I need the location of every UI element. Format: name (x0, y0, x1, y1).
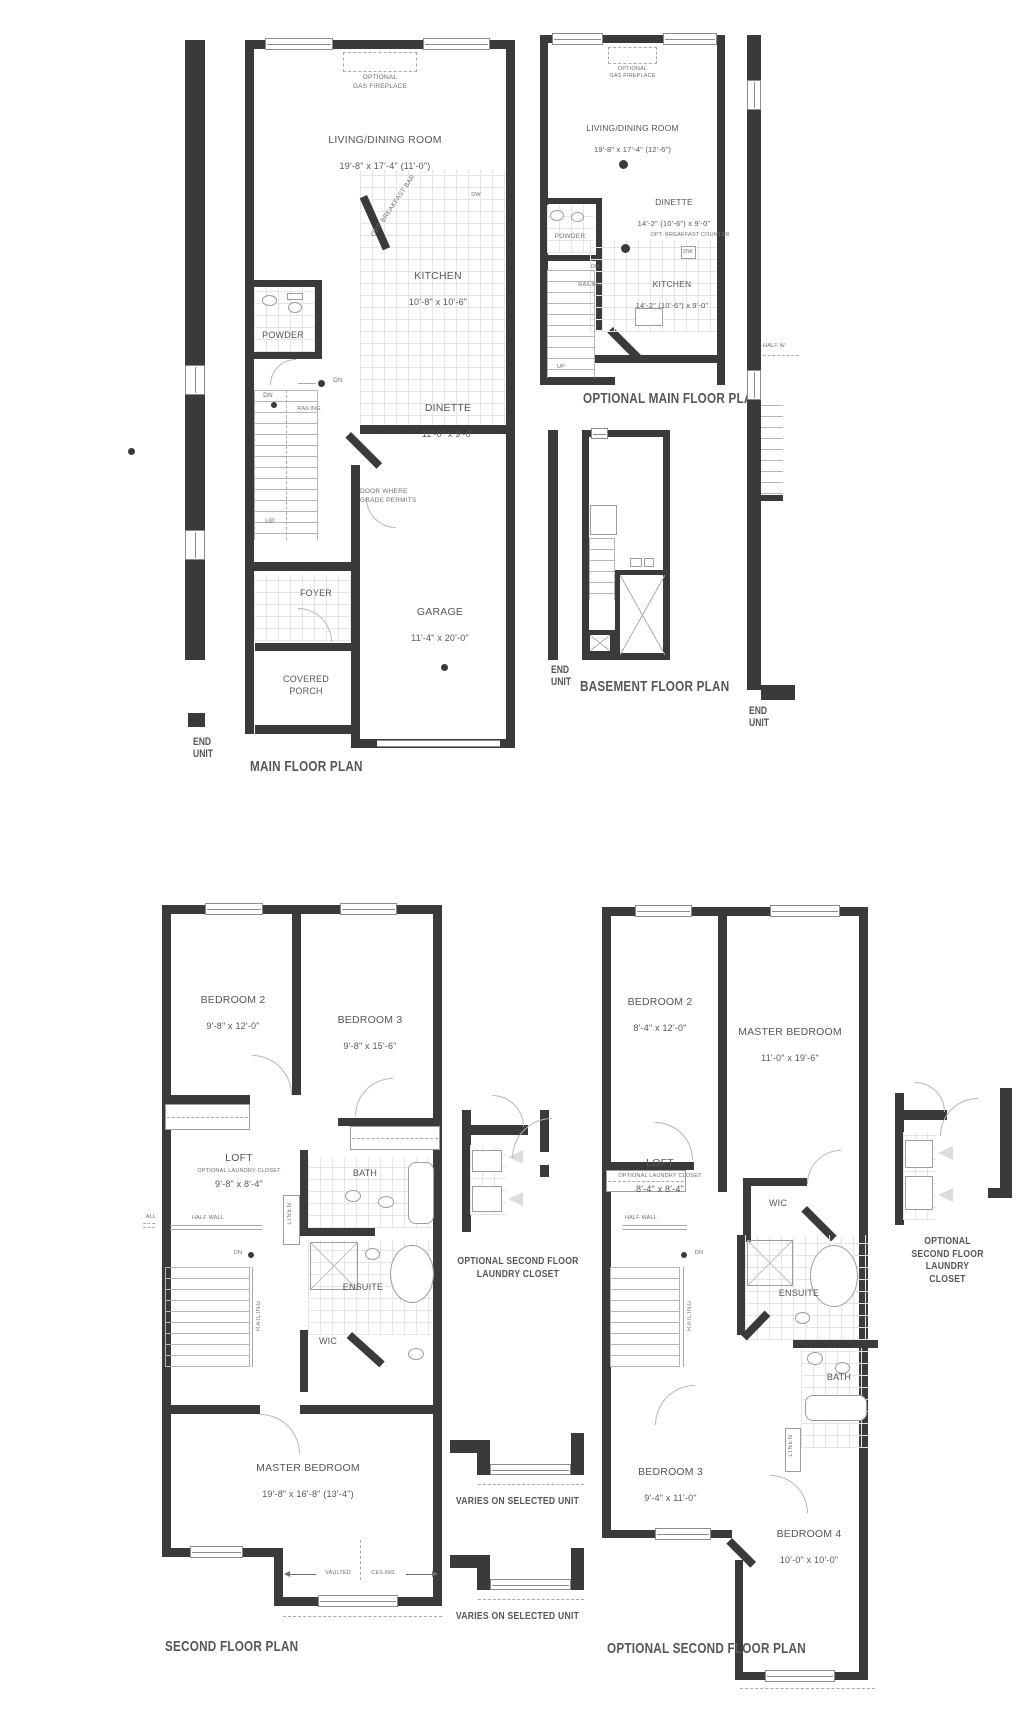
room-dims: 8'-4" x 12'-0" (595, 1023, 725, 1035)
room-dims: 11'-4" x 20'-0" (390, 633, 490, 645)
door-swing-arc (252, 1055, 292, 1095)
optional-fireplace-note: OPTIONAL GAS FIREPLACE (595, 66, 670, 81)
room-dims: 19'-8" x 17'-4" (12'-6") (580, 145, 685, 155)
window-icon (185, 365, 205, 395)
powder-wall (248, 352, 322, 359)
wic-wall (743, 1178, 807, 1186)
ceiling-label: CEILING (363, 1570, 403, 1577)
linen-label: LINEN (287, 1202, 293, 1225)
unexcavated-area (615, 570, 670, 660)
linen-label: LINEN (788, 1434, 794, 1457)
vaulted-arrow-line (406, 1574, 432, 1575)
room-name: LIVING/DINING ROOM (580, 123, 685, 134)
stairs (610, 1267, 680, 1367)
detail-wall-stub (540, 1165, 549, 1177)
room-name: LIVING/DINING ROOM (295, 134, 475, 148)
dryer-symbol (472, 1186, 502, 1212)
leader-line (143, 1227, 155, 1228)
stair-marker-dot (248, 1252, 254, 1258)
stair-treads (761, 405, 783, 495)
room-name: BEDROOM 4 (753, 1528, 865, 1542)
powder-wall (248, 280, 322, 287)
cold-cellar-area (585, 630, 615, 656)
room-label-living-dining: LIVING/DINING ROOM 19'-8" x 17'-4" (12'-… (580, 112, 685, 166)
closet-rod-line (352, 1138, 438, 1139)
door-swing-arc (655, 1385, 695, 1425)
wall-stair-bottom (540, 377, 615, 385)
room-label-covered-porch: COVERED PORCH (274, 674, 338, 697)
room-label-dinette: DINETTE 11'-0" x 9'-0" (398, 388, 498, 454)
column-dot (621, 244, 630, 253)
wall-stub (761, 495, 783, 501)
loft-note: OPTIONAL LAUNDRY CLOSET (187, 1168, 291, 1175)
end-unit-label: END UNIT (551, 664, 571, 688)
washer-symbol (905, 1140, 933, 1168)
window-icon (552, 33, 603, 45)
room-label-powder: POWDER (548, 233, 592, 242)
plan-title-main-floor: MAIN FLOOR PLAN (250, 758, 363, 775)
toilet-symbol (365, 1248, 380, 1260)
dn-label: DN (230, 1250, 246, 1257)
stair-marker-dot (681, 1252, 687, 1258)
wall-bed3-bottom (338, 1118, 442, 1126)
washer-symbol (472, 1150, 502, 1172)
window-icon (490, 1464, 571, 1475)
stairs (165, 1267, 250, 1367)
varies-label: VARIES ON SELECTED UNIT (454, 1495, 581, 1508)
wall-top (162, 905, 442, 914)
window-icon (765, 1670, 835, 1682)
bath-wall (300, 1228, 375, 1236)
room-name: LOFT (618, 1157, 702, 1171)
window-icon (635, 905, 692, 917)
half-wall-label: HALF WALL (625, 1215, 669, 1222)
room-name: KITCHEN (388, 270, 488, 284)
bifold-door-icon (938, 1188, 953, 1202)
room-dims: 9'-8" x 8'-4" (197, 1179, 281, 1191)
half-wall-line (623, 1229, 687, 1230)
room-label-bedroom4: BEDROOM 4 10'-0" x 10'-0" (753, 1514, 865, 1580)
window-icon (747, 370, 761, 400)
grade-door-note: DOOR WHERE GRADE PERMITS (360, 488, 424, 506)
window-icon (318, 1595, 398, 1607)
wall-foyer-garage (351, 465, 360, 748)
wall-porch-bottom (255, 725, 355, 734)
loft-note: OPTIONAL LAUNDRY CLOSET (608, 1173, 712, 1180)
laundry-tub-symbol (644, 558, 654, 567)
railing-label: RAILING (687, 1300, 693, 1331)
room-label-bedroom3: BEDROOM 3 9'-4" x 11'-0" (603, 1452, 738, 1518)
column-dot (441, 664, 448, 671)
end-unit-wall-foot (188, 713, 205, 727)
room-dims: 19'-8" x 16'-8" (13'-4") (228, 1489, 388, 1501)
stair-marker-dot (318, 380, 325, 387)
powder-wall (545, 198, 602, 204)
wall-kitchen-bottom (595, 355, 725, 363)
room-dims: 9'-8" x 15'-6" (300, 1041, 440, 1053)
door-swing-arc (270, 359, 296, 385)
bath-wall (793, 1340, 878, 1348)
end-unit-wall (548, 430, 558, 660)
room-label-kitchen: KITCHEN 10'-8" x 10'-6" (388, 256, 488, 322)
dn-label: DN (258, 392, 278, 401)
bay-wall (571, 1548, 584, 1590)
main-floor-plan: DN DN RAILING UP OPTIONAL GAS FIREPLACE … (170, 30, 535, 790)
room-dims: 8'-4" x 8'-4" (618, 1184, 702, 1196)
wall-bed2-bottom (162, 1095, 250, 1104)
wic-wall (743, 1178, 751, 1242)
stair-guide-line (286, 390, 287, 540)
optional-second-floor-plan: LOFT 8'-4" x 8'-4" OPTIONAL LAUNDRY CLOS… (595, 900, 910, 1705)
room-label-master: MASTER BEDROOM 11'-0" x 19'-6" (720, 1012, 860, 1078)
room-label-bath: BATH (340, 1168, 390, 1180)
room-dims: 9'-8" x 12'-0" (163, 1021, 303, 1033)
diagonal-wall (345, 432, 382, 469)
end-unit-wall (185, 560, 205, 660)
toilet-symbol (288, 302, 302, 313)
room-name: BEDROOM 2 (163, 994, 303, 1008)
room-label-ensuite: ENSUITE (767, 1288, 831, 1300)
half-wall-line (170, 1229, 262, 1230)
toilet-tank-symbol (287, 293, 303, 300)
powder-wall (315, 280, 322, 359)
room-name: BEDROOM 3 (603, 1466, 738, 1480)
sink-symbol (262, 295, 277, 306)
room-dims: 9'-4" x 11'-0" (603, 1493, 738, 1505)
room-label-bath: BATH (817, 1372, 861, 1384)
railing-line (683, 1267, 684, 1367)
leader-line (143, 1223, 155, 1224)
half-wall-label: HALF WALL (192, 1215, 236, 1222)
room-label-master: MASTER BEDROOM 19'-8" x 16'-8" (13'-4") (228, 1448, 388, 1514)
varies-label: VARIES ON SELECTED UNIT (454, 1610, 581, 1623)
optional-fireplace-box (343, 52, 417, 72)
stair-landing (590, 505, 617, 535)
bay-wall (450, 1555, 490, 1568)
detail-label: OPTIONAL SECOND FLOOR LAUNDRY CLOSET (457, 1255, 580, 1280)
shower-symbol (747, 1240, 793, 1286)
arrow-left-icon (284, 1571, 290, 1577)
varies-dash-line (478, 1599, 584, 1600)
half-wall-label: HALF W (763, 343, 803, 350)
window-icon (490, 1579, 571, 1590)
window-icon (190, 1546, 243, 1558)
bifold-door-icon (508, 1192, 523, 1206)
room-dims: 11'-0" x 9'-0" (398, 429, 498, 441)
wall-bed4-left (735, 1560, 743, 1680)
window-icon (655, 1528, 711, 1540)
closet-rod-line (167, 1117, 248, 1118)
wall-left (245, 40, 254, 734)
laundry-tub-symbol (630, 558, 642, 567)
wall-left (582, 430, 589, 660)
wall-foyer-top (245, 562, 360, 571)
vaulted-arrow-line (290, 1574, 316, 1575)
railing-label: RAILING (573, 282, 607, 289)
plan-title-second-floor: SECOND FLOOR PLAN (165, 1638, 298, 1655)
railing-line (252, 1267, 253, 1367)
sink-symbol (345, 1190, 361, 1202)
vaulted-divider-line (360, 1540, 361, 1580)
room-label-garage: GARAGE 11'-4" x 20'-0" (390, 592, 490, 658)
room-name: BEDROOM 3 (300, 1014, 440, 1028)
room-label-wic: WIC (306, 1336, 350, 1348)
dn-label: DN (328, 377, 348, 386)
room-name: MASTER BEDROOM (228, 1462, 388, 1476)
end-wall (747, 400, 761, 690)
room-label-bedroom2: BEDROOM 2 9'-8" x 12'-0" (163, 980, 303, 1046)
survey-dot (128, 448, 135, 455)
half-wall-line (170, 1225, 262, 1226)
window-icon (423, 38, 490, 50)
end-unit-label: END UNIT (193, 736, 213, 760)
room-name: MASTER BEDROOM (720, 1026, 860, 1040)
room-dims: 14'-2" (10'-6") x 9'-0" (624, 219, 724, 229)
dishwasher-label: DW (678, 249, 698, 256)
vaulted-label: VAULTED (318, 1570, 358, 1577)
detail-label: OPTIONAL SECOND FLOOR LAUNDRY CLOSET (909, 1235, 987, 1285)
room-label-bedroom3: BEDROOM 3 9'-8" x 15'-6" (300, 1000, 440, 1066)
dishwasher-label: DW (466, 192, 486, 199)
bifold-door-icon (938, 1146, 953, 1160)
room-label-bedroom2: BEDROOM 2 8'-4" x 12'-0" (595, 982, 725, 1048)
half-wall-line (623, 1225, 687, 1226)
wall-foyer-porch (255, 643, 360, 651)
room-dims: 10'-0" x 10'-0" (753, 1555, 865, 1567)
railing-label: RAILING (256, 1300, 262, 1331)
bay-wall (571, 1433, 584, 1475)
room-name: BEDROOM 2 (595, 996, 725, 1010)
dn-label: DN (691, 1250, 707, 1257)
plan-title-optional-second: OPTIONAL SECOND FLOOR PLAN (607, 1640, 806, 1657)
bay-wall (477, 1568, 490, 1590)
room-dims: 19'-8" x 17'-4" (11'-0") (295, 161, 475, 173)
room-label-wic: WIC (753, 1198, 803, 1210)
leader-line (763, 355, 799, 356)
sink-symbol (550, 210, 564, 221)
bay-wall (450, 1440, 490, 1453)
room-dims: 11'-0" x 19'-6" (720, 1053, 860, 1065)
stairs (589, 538, 615, 600)
window-icon (205, 903, 263, 915)
optional-fireplace-box (608, 47, 657, 64)
door-swing-arc (807, 1150, 841, 1184)
arrow-line (298, 383, 316, 384)
door-swing-arc (770, 1475, 808, 1513)
room-name: DINETTE (398, 402, 498, 416)
bathtub-symbol (805, 1395, 867, 1421)
end-wall-foot (761, 685, 795, 700)
window-icon (265, 38, 333, 50)
toilet-symbol (795, 1312, 810, 1324)
room-label-kitchen: KITCHEN 14'-2" (10'-6") x 9'-0" (622, 268, 722, 322)
soaker-tub-symbol (390, 1245, 434, 1303)
window-icon (663, 33, 717, 45)
garage-door (377, 740, 500, 747)
optional-fireplace-note: OPTIONAL GAS FIREPLACE (338, 74, 422, 92)
second-floor-plan: BATH LINEN LOFT 9'-8" x 8'-4" OPTIONAL L… (140, 900, 475, 1665)
end-wall (747, 110, 761, 370)
window-icon (185, 530, 205, 560)
room-name: LOFT (197, 1152, 281, 1166)
arrow-right-icon (432, 1571, 438, 1577)
sink-symbol (408, 1348, 424, 1360)
door-swing-arc (915, 1082, 945, 1112)
door-swing-arc (492, 1095, 524, 1127)
room-name: KITCHEN (622, 279, 722, 290)
varies-dash-line (478, 1484, 584, 1485)
wall-master-top (300, 1405, 442, 1414)
wall-right (506, 40, 515, 748)
end-unit-wall (185, 395, 205, 530)
wall-master-top (162, 1405, 260, 1414)
room-label-ensuite: ENSUITE (328, 1282, 398, 1294)
sink-symbol (807, 1352, 823, 1365)
room-label-powder: POWDER (256, 330, 310, 342)
window-icon (747, 80, 761, 110)
dryer-symbol (905, 1176, 933, 1210)
room-label-foyer: FOYER (286, 588, 346, 600)
end-unit-wall-detail: HALF W END UNIT (735, 35, 825, 735)
varies-dash-line (283, 1616, 442, 1617)
door-swing-arc (940, 1098, 978, 1136)
end-unit-label: END UNIT (749, 705, 769, 729)
bath-wall (300, 1150, 308, 1235)
bathtub-symbol (408, 1162, 434, 1224)
room-dims: 10'-8" x 10'-6" (388, 297, 488, 309)
up-label: UP (551, 364, 571, 371)
end-unit-wall (185, 40, 205, 365)
bay-wall (477, 1453, 490, 1475)
dn-label: DN (585, 264, 605, 271)
floorplan-sheet: DN DN RAILING UP OPTIONAL GAS FIREPLACE … (0, 0, 1024, 1736)
plan-title-basement: BASEMENT FLOOR PLAN (580, 678, 729, 695)
door-swing-arc (355, 1078, 393, 1116)
side-note: ALL (143, 1214, 159, 1221)
room-dims: 14'-2" (10'-6") x 9'-0" (622, 301, 722, 311)
end-wall (747, 35, 761, 80)
toilet-symbol (571, 212, 584, 222)
window-icon (591, 428, 608, 439)
column-dot (619, 160, 628, 169)
window-icon (770, 905, 840, 917)
varies-dash-line (740, 1688, 875, 1689)
adjacent-wall (1000, 1088, 1012, 1188)
room-name: GARAGE (390, 606, 490, 620)
ensuite-wall (737, 1235, 745, 1335)
toilet-symbol (378, 1196, 394, 1208)
railing-label: RAILING (288, 406, 330, 413)
stair-marker-dot (271, 402, 277, 408)
adjacent-wall-stub (988, 1188, 1012, 1198)
wic-diagonal-wall (347, 1332, 385, 1367)
room-label-living-dining: LIVING/DINING ROOM 19'-8" x 17'-4" (11'-… (295, 120, 475, 186)
breakfast-counter-note: OPT. BREAKFAST COUNTER (650, 232, 730, 239)
room-name: DINETTE (624, 197, 724, 208)
window-icon (340, 903, 397, 915)
up-label: UP (260, 518, 280, 527)
